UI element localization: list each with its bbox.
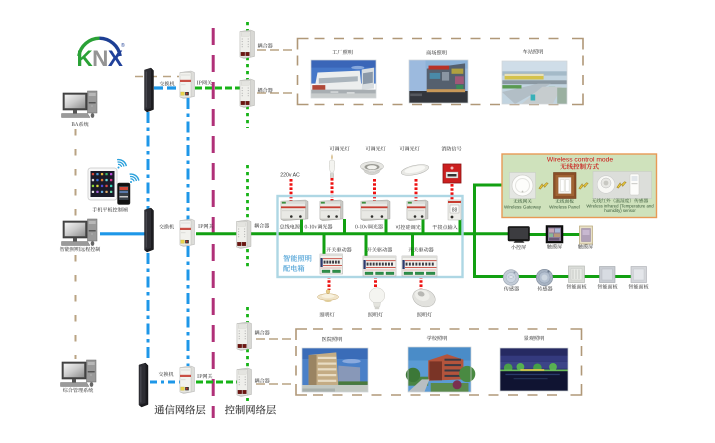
svg-text:®: ® <box>121 42 125 49</box>
svg-text:humidity) sensor: humidity) sensor <box>604 208 636 213</box>
svg-text:Wireless Gateway: Wireless Gateway <box>504 205 542 210</box>
svg-text:220v AC: 220v AC <box>280 173 300 179</box>
svg-text:KNX: KNX <box>77 46 123 71</box>
svg-text:Wireless Panel: Wireless Panel <box>549 205 580 210</box>
svg-text:Wireless control mode: Wireless control mode <box>547 157 613 164</box>
svg-text:88: 88 <box>452 208 458 214</box>
